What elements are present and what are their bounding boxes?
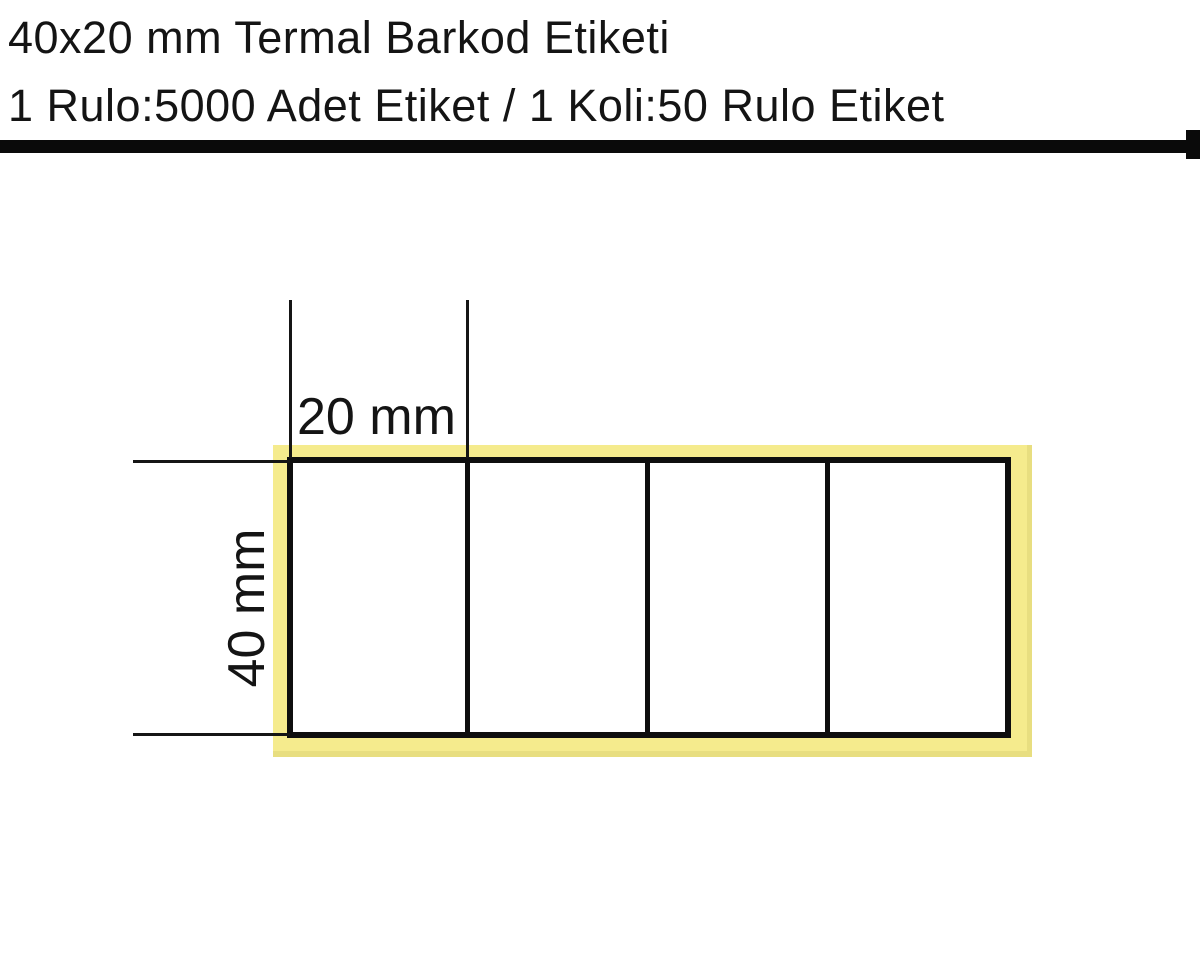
- width-extension-line-right: [466, 300, 469, 458]
- product-dimension-diagram-page: 40x20 mm Termal Barkod Etiketi 1 Rulo:50…: [0, 0, 1200, 976]
- product-packaging-info: 1 Rulo:5000 Adet Etiket / 1 Koli:50 Rulo…: [8, 80, 945, 132]
- product-title: 40x20 mm Termal Barkod Etiketi: [8, 12, 670, 64]
- header-divider-rule: [0, 140, 1200, 153]
- height-dimension-label: 40 mm: [217, 508, 277, 708]
- height-extension-line-top: [133, 460, 290, 463]
- width-dimension-label: 20 mm: [297, 391, 456, 443]
- width-extension-line-left: [289, 300, 292, 458]
- height-extension-line-bottom: [133, 733, 290, 736]
- label-divider: [645, 463, 650, 732]
- label-divider: [465, 463, 470, 732]
- label-divider: [825, 463, 830, 732]
- header-divider-endcap: [1186, 130, 1200, 159]
- label-strip: [287, 457, 1011, 738]
